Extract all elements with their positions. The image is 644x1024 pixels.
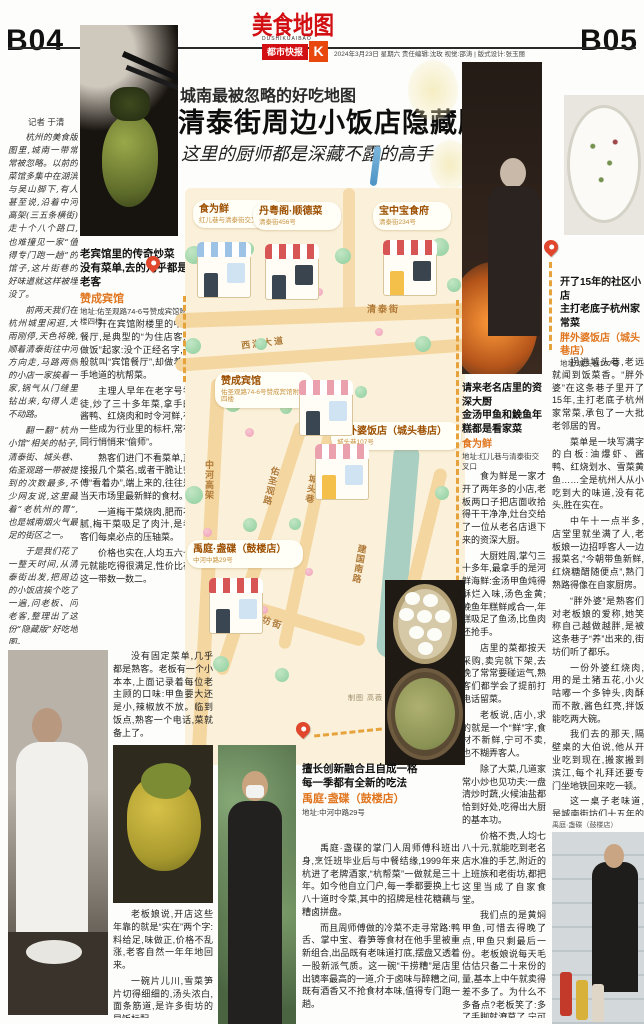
route-dash	[549, 262, 552, 350]
tree-icon	[335, 248, 351, 264]
tree-icon	[275, 668, 289, 682]
paragraph: 而且周师傅做的冷菜不走寻常路:鸭舌、掌中宝、春笋等食材在他手里被重新组合,出品既…	[302, 922, 460, 1011]
body-shape	[488, 186, 540, 336]
photo-kitchen-chef	[552, 832, 644, 1024]
caption-line: 擅长创新融合且自成一格	[302, 762, 460, 776]
paragraph: 价格也实在,人均五六十元就能吃得很满足,性价比在这一带数一数二。	[80, 547, 192, 585]
head-shape	[32, 708, 62, 744]
head-shape	[500, 158, 526, 188]
photo-chef-flames	[462, 62, 542, 374]
street-label-zhonghe: 中河高架	[203, 460, 216, 500]
headline-subtitle: 这里的厨师都是深藏不露的高手	[181, 140, 433, 166]
shop-name: 宝中宝食府	[379, 206, 445, 218]
shop-icon-yuting	[209, 578, 263, 640]
door	[216, 609, 230, 633]
road-qingtai	[175, 303, 475, 328]
tree-icon	[243, 518, 257, 532]
shop-address: 佑圣观路74-6号赞成宾馆附楼四楼	[221, 389, 307, 405]
map-shop-label-baozhongbao: 宝中宝食府 清泰街234号	[373, 202, 451, 230]
article-shiweixian: 食为鲜是一家才开了两年多的小店,老板两口子把店面收拾得干干净净,灶台交给了一位从…	[462, 470, 546, 1018]
photo-caption-kitchen: 禹庭·盏碟（鼓楼店）	[552, 820, 644, 830]
shop-icon-pangwaipo	[315, 444, 369, 506]
window	[295, 265, 313, 285]
paragraph: 熟客们进门不看菜单,直接报几个菜名,或者干脆让师傅“看着办”,端上来的,往往是当…	[80, 452, 192, 503]
tree-icon	[185, 486, 203, 504]
storefront	[383, 255, 437, 296]
storefront	[209, 593, 263, 634]
flower-icon	[245, 428, 254, 437]
flower-icon	[305, 568, 313, 576]
door	[204, 273, 218, 297]
caption-yuting: 擅长创新融合且自成一格 每一季都有全新的吃法 禹庭·盏碟（鼓楼店） 地址:中河中…	[302, 762, 460, 818]
shop-name: 丹粤阁·顺德菜	[259, 206, 335, 218]
shop-icon-danyuege	[265, 244, 319, 306]
page-number-left: B04	[6, 24, 64, 58]
leaf-decoration	[408, 60, 458, 120]
caption-line: 每一季都有全新的吃法	[302, 776, 460, 790]
door	[272, 275, 286, 299]
restaurant-name: 赞成宾馆	[80, 292, 192, 306]
paragraph: 拐进城头巷,老远就闻到饭菜香。“胖外婆”在这条巷子里开了15年,主打老底子杭州家…	[552, 356, 644, 433]
shop-icon-baozhongbao	[383, 240, 437, 302]
paragraph: 这一桌子老味道,是城南街坊们十五年的默契,也是清泰街一带最踏实的烟火气。	[552, 795, 644, 816]
tree-icon	[185, 338, 201, 354]
door	[390, 271, 404, 295]
awning	[209, 578, 263, 593]
paragraph: “胖外婆”是熟客们对老板娘的爱称,她笑称自己越做越胖,是被这条巷子“养”出来的,…	[552, 595, 644, 659]
location-pin-icon	[541, 237, 561, 257]
awning	[315, 444, 369, 459]
paragraph: 一份外婆红烧肉,用的是土猪五花,小火咕嘟一个多钟头,肉酥而不散,酱色红亮,拌饭能…	[552, 662, 644, 726]
leaf-shape	[141, 763, 191, 799]
storefront	[265, 259, 319, 300]
plate-shape	[26, 940, 82, 964]
street-label-qingtai: 清泰街	[367, 302, 400, 315]
paragraph: 店里的菜都按天采购,卖完就下架,去晚了常常要碰运气,熟客们都学会了提前打电话留菜…	[462, 642, 546, 706]
soup-shape	[395, 678, 455, 750]
paragraph: 我们点的是黄焖甲鱼,可惜去得晚了点,甲鱼只剩最后一份。老板娘说每天毛估估只备二十…	[462, 909, 546, 1018]
storefront	[315, 459, 369, 500]
paragraph: 老板说,店小,求的就是一个“鲜”字,食材不新鲜,宁可不卖,也不糊弄客人。	[462, 709, 546, 760]
storefront	[299, 395, 353, 436]
paragraph: 翻一翻“杭州小馆”相关的帖子,清泰街、城头巷、佑圣观路一带被提到的次数最多,不少…	[8, 425, 78, 543]
paragraph: 没有固定菜单,几乎都是熟客。老板有一个小本本,上面记录着每位老主顾的口味:甲鱼要…	[113, 650, 213, 739]
photo-leaf-wrapped-dish	[113, 745, 213, 903]
tree-icon	[355, 386, 367, 398]
tree-icon	[289, 518, 301, 530]
caption-line: 没有菜单,去的几乎都是老客	[80, 261, 192, 289]
caption-line: 开了15年的社区小店	[560, 276, 644, 303]
map-credit: 制图 高薇	[348, 693, 383, 703]
road-xihu	[175, 337, 485, 372]
paragraph: 除了大菜,几道家常小炒也见功夫:一盘清炒时蔬,火候油盐都恰到好处,吃得出大厨的基…	[462, 763, 546, 827]
paragraph: 开在宾馆附楼里的中式餐厅,是典型的“为住店客人做饭”起家:没个正经名字,一般就叫…	[80, 318, 192, 382]
bottle-shape	[592, 984, 604, 1022]
reporter-notes-column: 杭州的美食版图里,城南一带常常被忽略。以前的菜馆多集中在湖滨与吴山脚下,有人甚至…	[8, 132, 78, 644]
mask-shape	[246, 785, 264, 798]
paragraph: 我们去的那天,隔壁桌的大伯说,他从开业吃到现在,搬家搬到滨江,每个礼拜还要专门坐…	[552, 728, 644, 792]
paragraph: 前两天我们在杭州城里闲逛,大雨刚停,天色将晚,顺着清泰街往中河方向走,马路两侧的…	[8, 305, 78, 423]
shop-address: 清泰街456号	[259, 219, 335, 227]
paragraph: 一道梅干菜烧肉,肥而不腻,梅干菜吸足了肉汁,是老客们每桌必点的压轴菜。	[80, 506, 192, 544]
shop-address: 中河中路29号	[193, 557, 297, 565]
uniform-shape	[16, 742, 88, 932]
paragraph: 价格不贵,人均七八十元,就能吃到老名店水准的手艺,附近的上班族和老街坊,都把这里…	[462, 830, 546, 907]
tree-icon	[415, 336, 431, 352]
map-shop-label-yuting: 禹庭·盏碟（鼓楼店） 中河中路29号	[187, 540, 303, 568]
storefront	[197, 257, 251, 298]
page-number-right: B05	[580, 24, 638, 58]
food-shape	[110, 87, 150, 121]
body-shape	[228, 801, 282, 1024]
brand-romanized: DUSHIKUAIBAO	[262, 36, 312, 42]
photo-chef-plating	[8, 650, 108, 1015]
tree-icon	[447, 278, 461, 292]
article-pangwaipo: 拐进城头巷,老远就闻到饭菜香。“胖外婆”在这条巷子里开了15年,主打老底子杭州家…	[552, 356, 644, 816]
window	[413, 261, 431, 281]
body-shape	[592, 862, 638, 992]
photo-fried-rice	[564, 95, 644, 235]
food-shape	[102, 115, 158, 207]
head-shape	[604, 844, 624, 868]
awning	[265, 244, 319, 259]
awning	[197, 242, 251, 257]
street-label-jianguo: 建国南路	[350, 543, 370, 585]
window	[329, 401, 347, 421]
photo-chopsticks-dish	[80, 25, 178, 236]
route-dash	[183, 296, 186, 382]
restaurant-name: 食为鲜	[462, 438, 546, 451]
paragraph: 中午十一点半多,店堂里就坐满了人,老板娘一边招呼客人一边报菜名,“今朝带鱼新鲜,…	[552, 515, 644, 592]
flower-icon	[203, 528, 212, 537]
paragraph: 一碗片儿川,雪菜笋片切得细细的,汤头浓白,面条筋道,是许多街坊的早饭标配。	[113, 975, 213, 1018]
caption-line: 主打老底子杭州家常菜	[560, 303, 644, 330]
window	[239, 599, 257, 619]
byline: 记者 于清	[28, 116, 64, 128]
newspaper-page: B04 B05 美食地图 DUSHIKUAIBAO 都市快报 K 2024年3月…	[0, 0, 644, 1024]
brand-logo: 都市快报	[262, 44, 308, 60]
bottle-shape	[560, 972, 572, 1016]
window	[227, 263, 245, 283]
article-column-t1b: 老板娘说,开店这些年靠的就是“实在”两个字:料给足,味做正,价格不乱涨,老客自然…	[113, 908, 213, 1018]
awning	[299, 380, 353, 395]
tree-icon	[213, 656, 229, 672]
shop-address: 清泰街234号	[379, 219, 445, 227]
caption-shiweixian: 请来老名店里的资深大厨 金汤甲鱼和鮸鱼年糕都是看家菜 食为鲜 地址:红儿巷与清泰…	[462, 382, 546, 472]
caption-line: 金汤甲鱼和鮸鱼年糕都是看家菜	[462, 409, 546, 436]
map-shop-label-danyuege: 丹粤阁·顺德菜 清泰街456号	[253, 202, 341, 230]
tree-icon	[435, 486, 449, 500]
bottle-shape	[576, 980, 588, 1020]
paragraph: 杭州的美食版图里,城南一带常常被忽略。以前的菜馆多集中在湖滨与吴山脚下,有人甚至…	[8, 132, 78, 302]
rice-shape	[576, 121, 632, 205]
paragraph: 大厨姓周,掌勺三十多年,最拿手的是河鲜海鲜:金汤甲鱼炖得酥烂入味,汤色金黄;鮸鱼…	[462, 550, 546, 639]
dateline: 2024年3月23日 星期六 责任编辑:沈玫 视觉:邵涛 | 版式设计:张玉丽	[334, 48, 525, 58]
article-yuting: 禹庭·盏碟的掌门人周师傅科班出身,烹饪班毕业后与中餐结缘,1999年来杭进了老牌…	[302, 842, 460, 1020]
restaurant-name: 胖外婆饭店（城头巷店）	[560, 332, 644, 358]
shop-icon-zancheng	[299, 380, 353, 442]
paragraph: 食为鲜是一家才开了两年多的小店,老板两口子把店面收拾得干干净净,灶台交给了一位从…	[462, 470, 546, 547]
paragraph: 主理人早年在老字号学徒,炒了三十多年菜,拿手的酱鸭、红烧肉和时令河鲜,有一些成为…	[80, 385, 192, 449]
caption-line: 请来老名店里的资深大厨	[462, 382, 546, 409]
paragraph: 于是我们花了一整天时间,从清泰街出发,把周边的小饭店挨个吃了一遍,问老板、问老客…	[8, 546, 78, 644]
shop-name: 禹庭·盏碟（鼓楼店）	[193, 544, 297, 556]
shop-name: 赞成宾馆	[221, 376, 307, 388]
door	[322, 475, 336, 499]
tree-icon	[255, 338, 267, 350]
caption-zancheng: 老宾馆里的传奇炒菜 没有菜单,去的几乎都是老客 赞成宾馆 地址:佑圣观路74-6…	[80, 247, 192, 327]
photo-soup-dishes	[385, 580, 465, 765]
photo-chef-masked	[218, 745, 296, 1024]
paragraph: 老板娘说,开店这些年靠的就是“实在”两个字:料给足,味做正,价格不乱涨,老客自然…	[113, 908, 213, 972]
restaurant-name: 禹庭·盏碟（鼓楼店）	[302, 792, 460, 806]
shop-name: 胖外婆饭店（城头巷店）	[337, 426, 455, 438]
window	[345, 465, 363, 485]
door	[306, 411, 320, 435]
paragraph: 禹庭·盏碟的掌门人周师傅科班出身,烹饪班毕业后与中餐结缘,1999年来杭进了老牌…	[302, 842, 460, 919]
restaurant-address: 地址:中河中路29号	[302, 808, 460, 818]
awning	[383, 240, 437, 255]
shop-icon-shiweixian	[197, 242, 251, 304]
article-column-t1a: 没有固定菜单,几乎都是熟客。老板有一个小本本,上面记录着每位老主顾的口味:甲鱼要…	[113, 650, 213, 742]
paragraph: 菜单是一块写满字的白板:油爆虾、酱鸭、红烧划水、雪菜黄鱼……全是杭州人从小吃到大…	[552, 436, 644, 513]
caption-line: 老宾馆里的传奇炒菜	[80, 247, 192, 261]
flower-icon	[375, 328, 383, 336]
brand-k-logo: K	[309, 41, 328, 62]
